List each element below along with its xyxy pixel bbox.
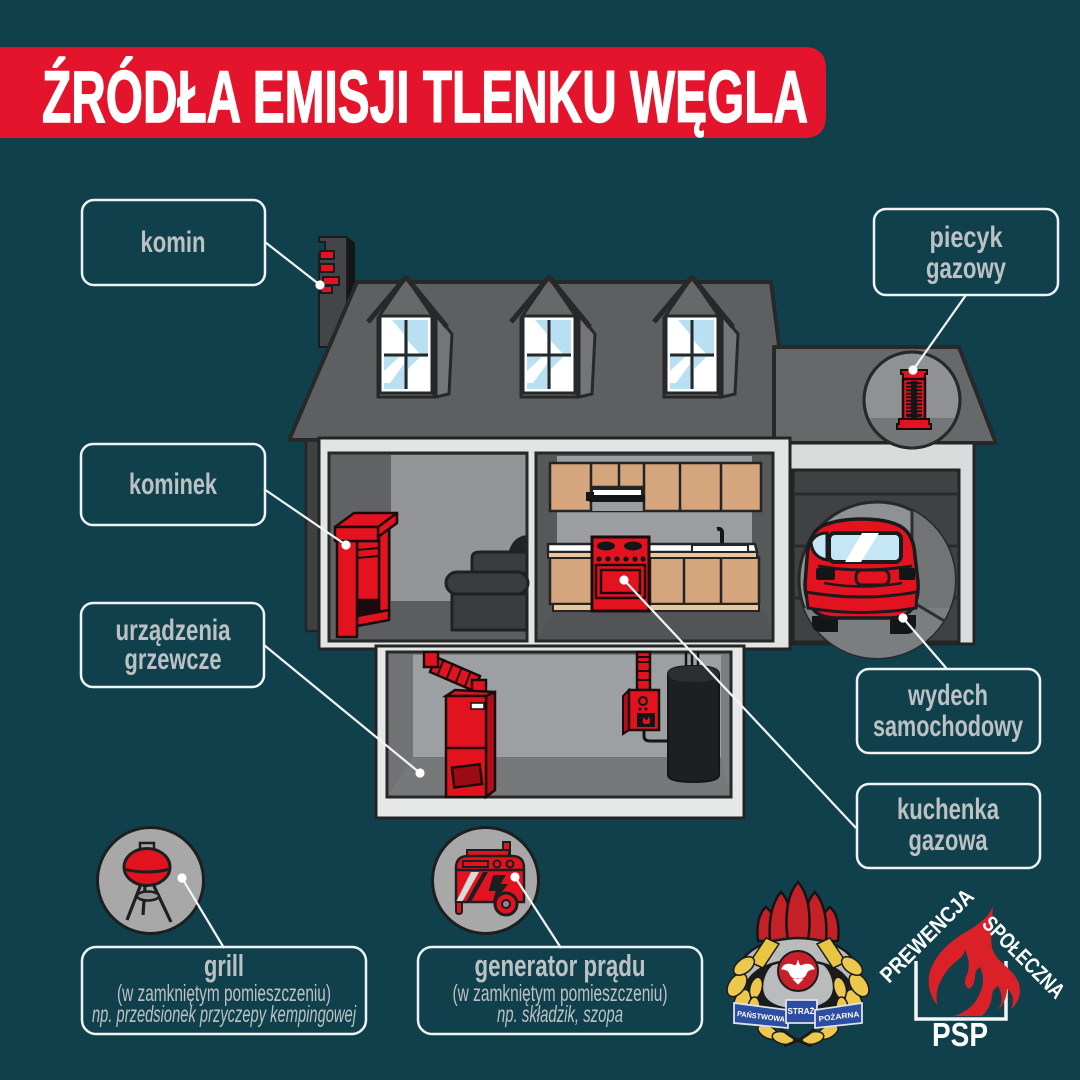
svg-text:ŹRÓDŁA EMISJI TLENKU WĘGLA: ŹRÓDŁA EMISJI TLENKU WĘGLA: [42, 57, 808, 138]
svg-text:grill: grill: [204, 948, 244, 983]
svg-text:grzewcze: grzewcze: [125, 643, 222, 676]
svg-text:np. przedsionek przyczepy kemp: np. przedsionek przyczepy kempingowej: [92, 1001, 357, 1027]
svg-text:gazowa: gazowa: [909, 824, 988, 857]
svg-text:kominek: kominek: [129, 468, 217, 501]
svg-text:generator prądu: generator prądu: [475, 948, 646, 983]
svg-text:STRAŻ: STRAŻ: [788, 1006, 815, 1016]
svg-text:gazowy: gazowy: [926, 252, 1006, 285]
svg-text:kuchenka: kuchenka: [897, 793, 999, 826]
svg-text:wydech: wydech: [907, 679, 988, 712]
svg-text:np. składzik, szopa: np. składzik, szopa: [497, 1001, 623, 1027]
svg-text:samochodowy: samochodowy: [873, 710, 1023, 743]
svg-text:piecyk: piecyk: [930, 221, 1003, 254]
svg-text:PSP: PSP: [932, 1016, 988, 1053]
svg-text:komin: komin: [141, 226, 206, 259]
